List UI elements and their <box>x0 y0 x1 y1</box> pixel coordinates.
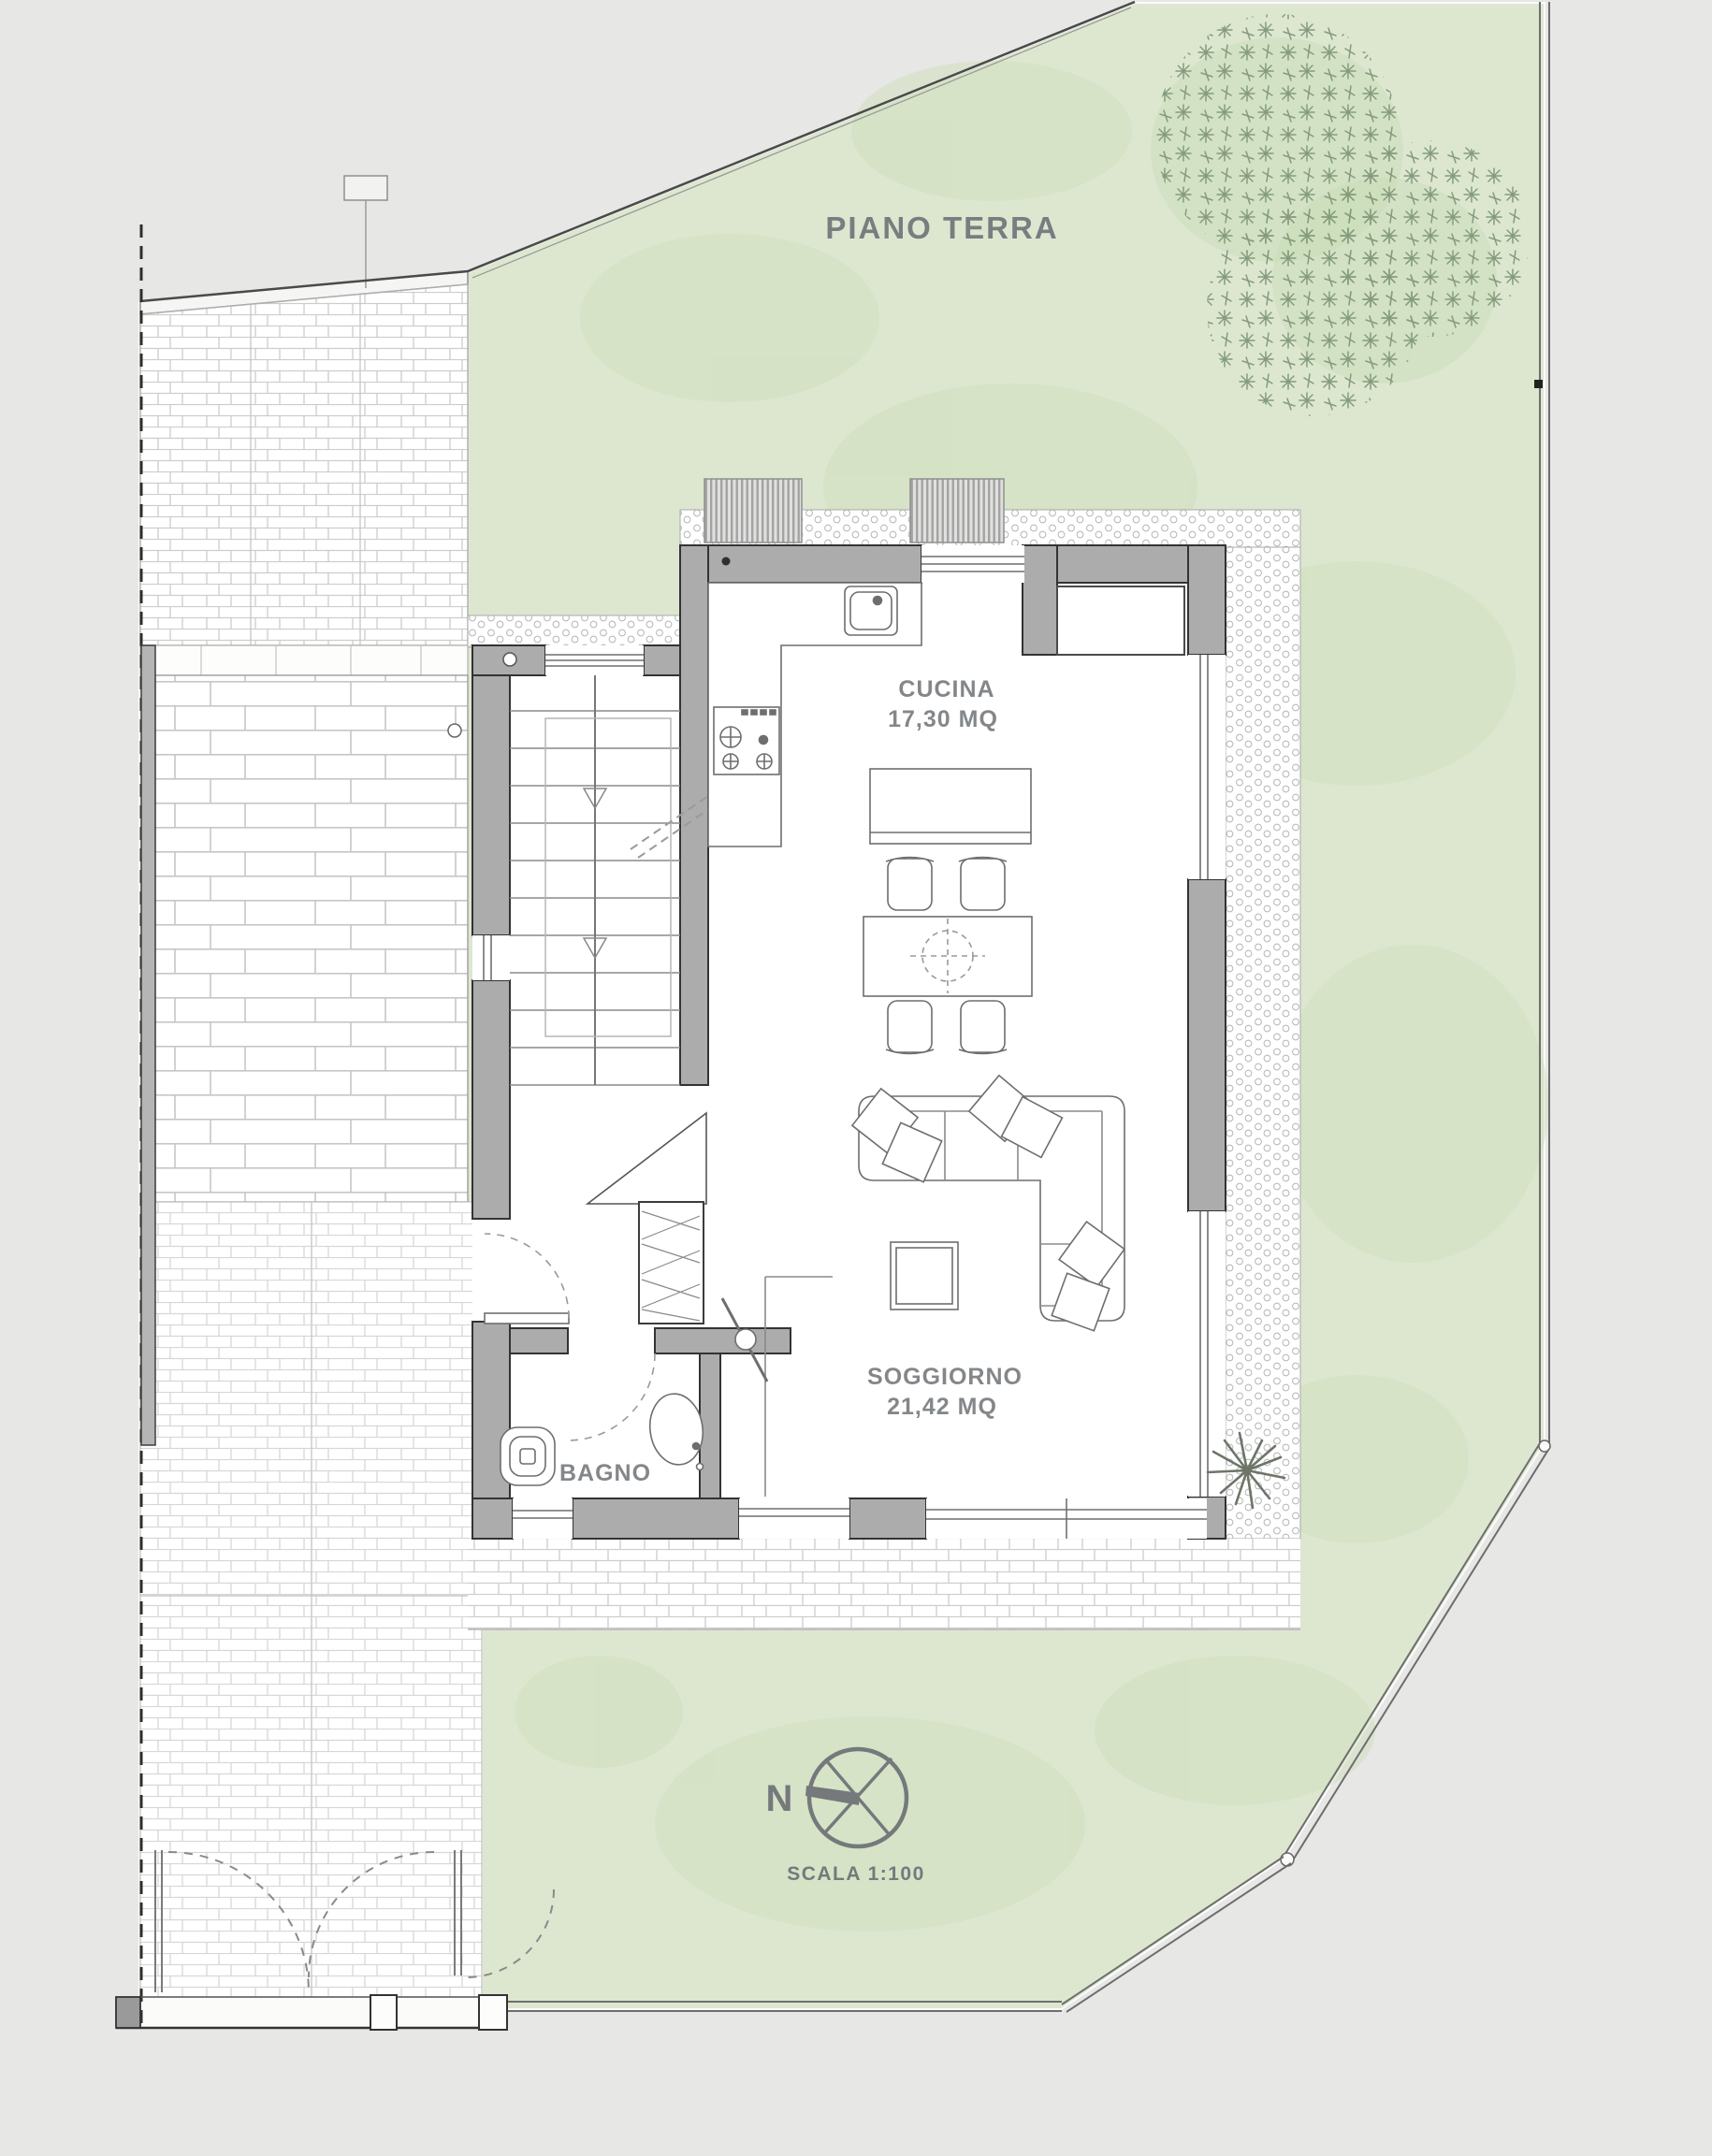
niche <box>1057 586 1184 655</box>
paving-courtyard <box>155 675 468 1202</box>
dining-table <box>863 917 1032 996</box>
wall-marker-icon <box>722 557 731 566</box>
room-area-cucina: 17,30 MQ <box>888 706 998 732</box>
drain-icon <box>503 653 516 666</box>
stove-icon <box>714 707 779 774</box>
gate-pillar <box>370 1995 397 2030</box>
scale-label: SCALA 1:100 <box>787 1863 925 1885</box>
coffee-table <box>891 1242 958 1310</box>
paving-driveway <box>140 1202 482 1997</box>
room-label-bagno: BAGNO <box>559 1460 651 1486</box>
sink-icon <box>845 586 897 635</box>
room-label-soggiorno: SOGGIORNO <box>867 1364 1023 1390</box>
floor-plan: PIANO TERRA CUCINA 17,30 MQ SOGGIORNO 21… <box>0 0 1712 2156</box>
gate-pillar <box>479 1995 507 2030</box>
terrace <box>468 1539 1300 1629</box>
toilet-icon <box>501 1427 555 1485</box>
room-area-soggiorno: 21,42 MQ <box>887 1394 997 1420</box>
page-title: PIANO TERRA <box>825 210 1058 245</box>
downspout-icon <box>448 724 461 737</box>
left-wall <box>141 645 155 1445</box>
building <box>448 545 1284 1539</box>
kitchen-island <box>870 769 1031 844</box>
north-label: N <box>766 1778 793 1819</box>
room-label-cucina: CUCINA <box>898 676 994 702</box>
